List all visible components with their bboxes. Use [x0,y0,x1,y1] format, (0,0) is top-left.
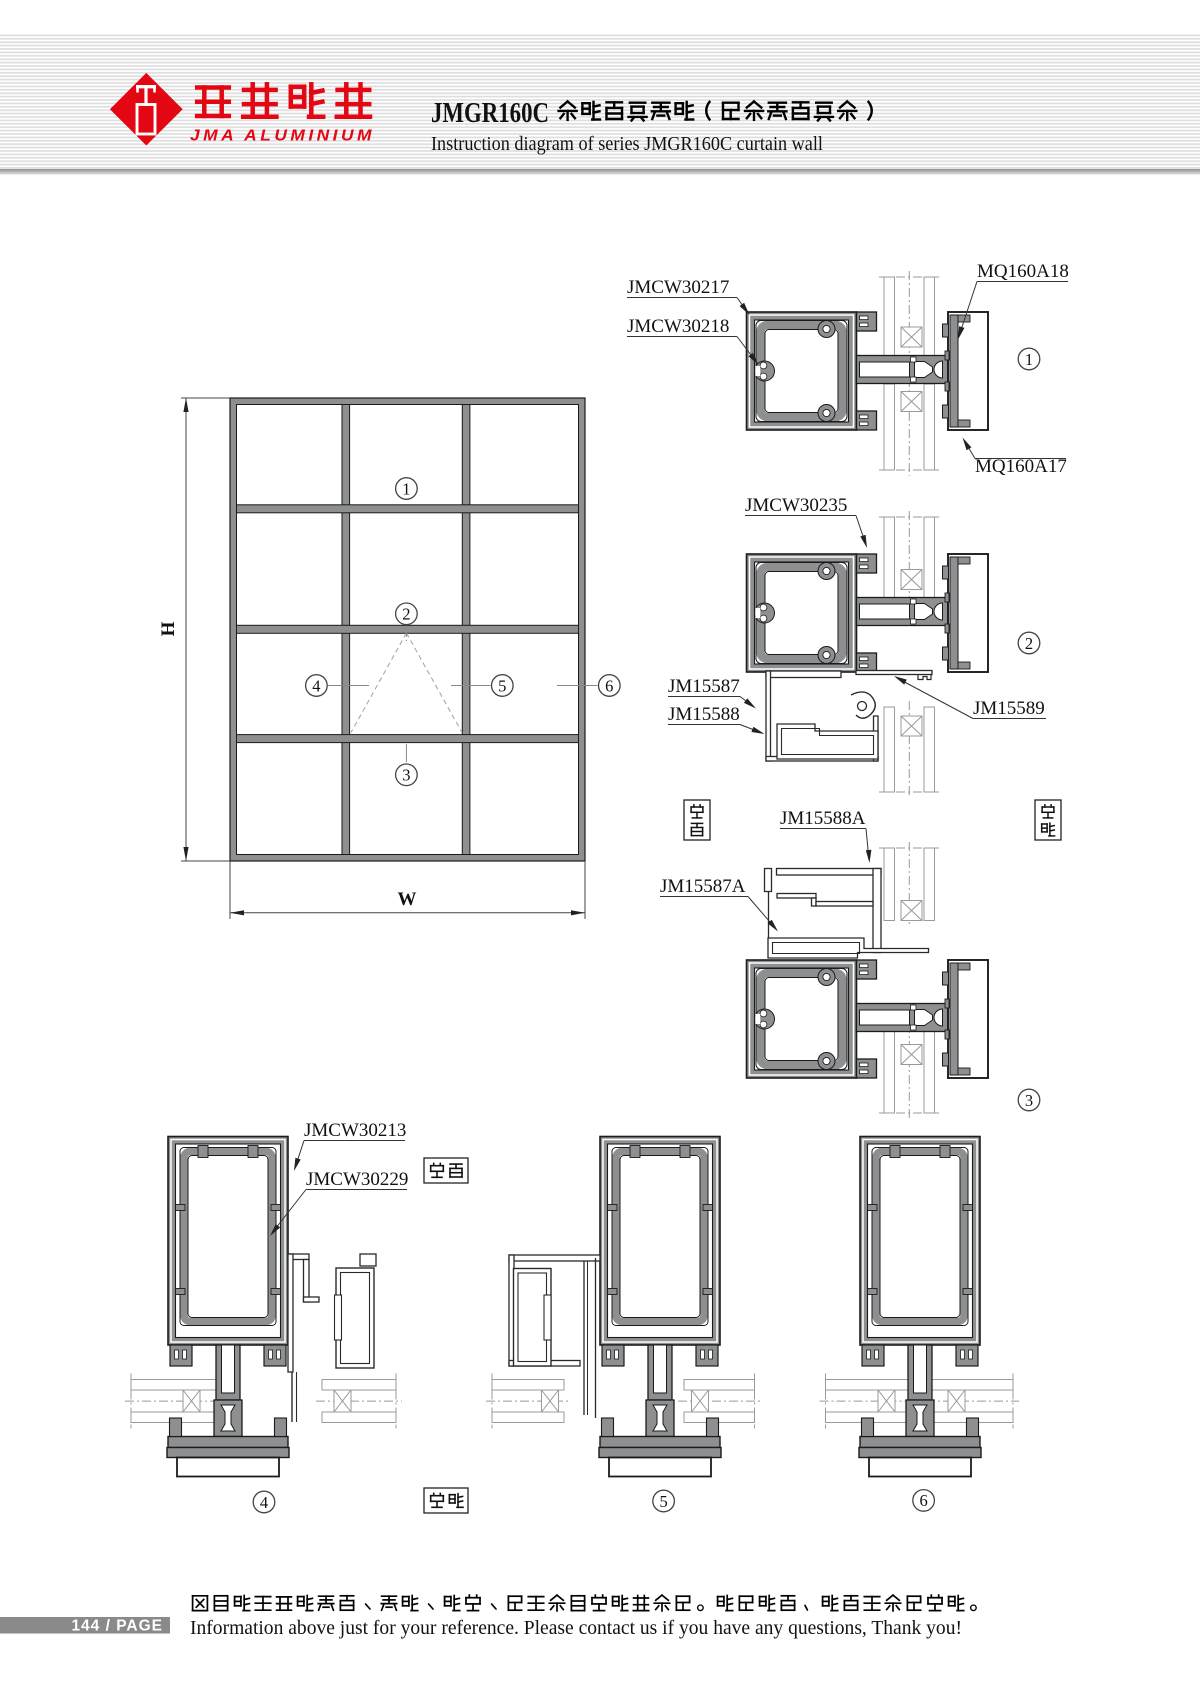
svg-text:JM15588A: JM15588A [780,808,866,829]
svg-text:1: 1 [1025,350,1033,369]
svg-text:JMCW30235: JMCW30235 [745,495,847,516]
svg-text:144 / PAGE: 144 / PAGE [71,1618,163,1635]
svg-text:JM15589: JM15589 [973,698,1045,719]
svg-text:MQ160A17: MQ160A17 [975,456,1067,477]
svg-text:JMGR160C: JMGR160C [431,98,549,129]
svg-text:JMCW30229: JMCW30229 [306,1169,408,1190]
svg-text:JMCW30218: JMCW30218 [627,316,729,337]
svg-text:JM15588: JM15588 [668,704,740,725]
svg-text:JMCW30213: JMCW30213 [304,1120,406,1141]
svg-text:3: 3 [402,766,410,785]
svg-text:Information above just for you: Information above just for your referenc… [190,1617,962,1639]
svg-text:3: 3 [1025,1091,1033,1110]
svg-text:4: 4 [260,1493,268,1512]
svg-text:1: 1 [402,479,410,498]
svg-text:6: 6 [919,1491,927,1510]
svg-text:2: 2 [402,605,410,624]
svg-text:5: 5 [659,1492,667,1511]
svg-text:MQ160A18: MQ160A18 [977,261,1069,282]
svg-text:JM15587: JM15587 [668,676,740,697]
svg-text:Instruction diagram of series: Instruction diagram of series JMGR160C c… [431,133,823,155]
svg-text:2: 2 [1025,634,1033,653]
svg-text:W: W [398,889,417,910]
svg-text:4: 4 [312,676,320,695]
svg-text:H: H [158,621,179,636]
svg-text:6: 6 [605,676,613,695]
svg-text:JM15587A: JM15587A [660,876,746,897]
svg-text:JMCW30217: JMCW30217 [627,277,729,298]
svg-text:5: 5 [498,676,506,695]
svg-text:JMA ALUMINIUM: JMA ALUMINIUM [190,128,375,145]
